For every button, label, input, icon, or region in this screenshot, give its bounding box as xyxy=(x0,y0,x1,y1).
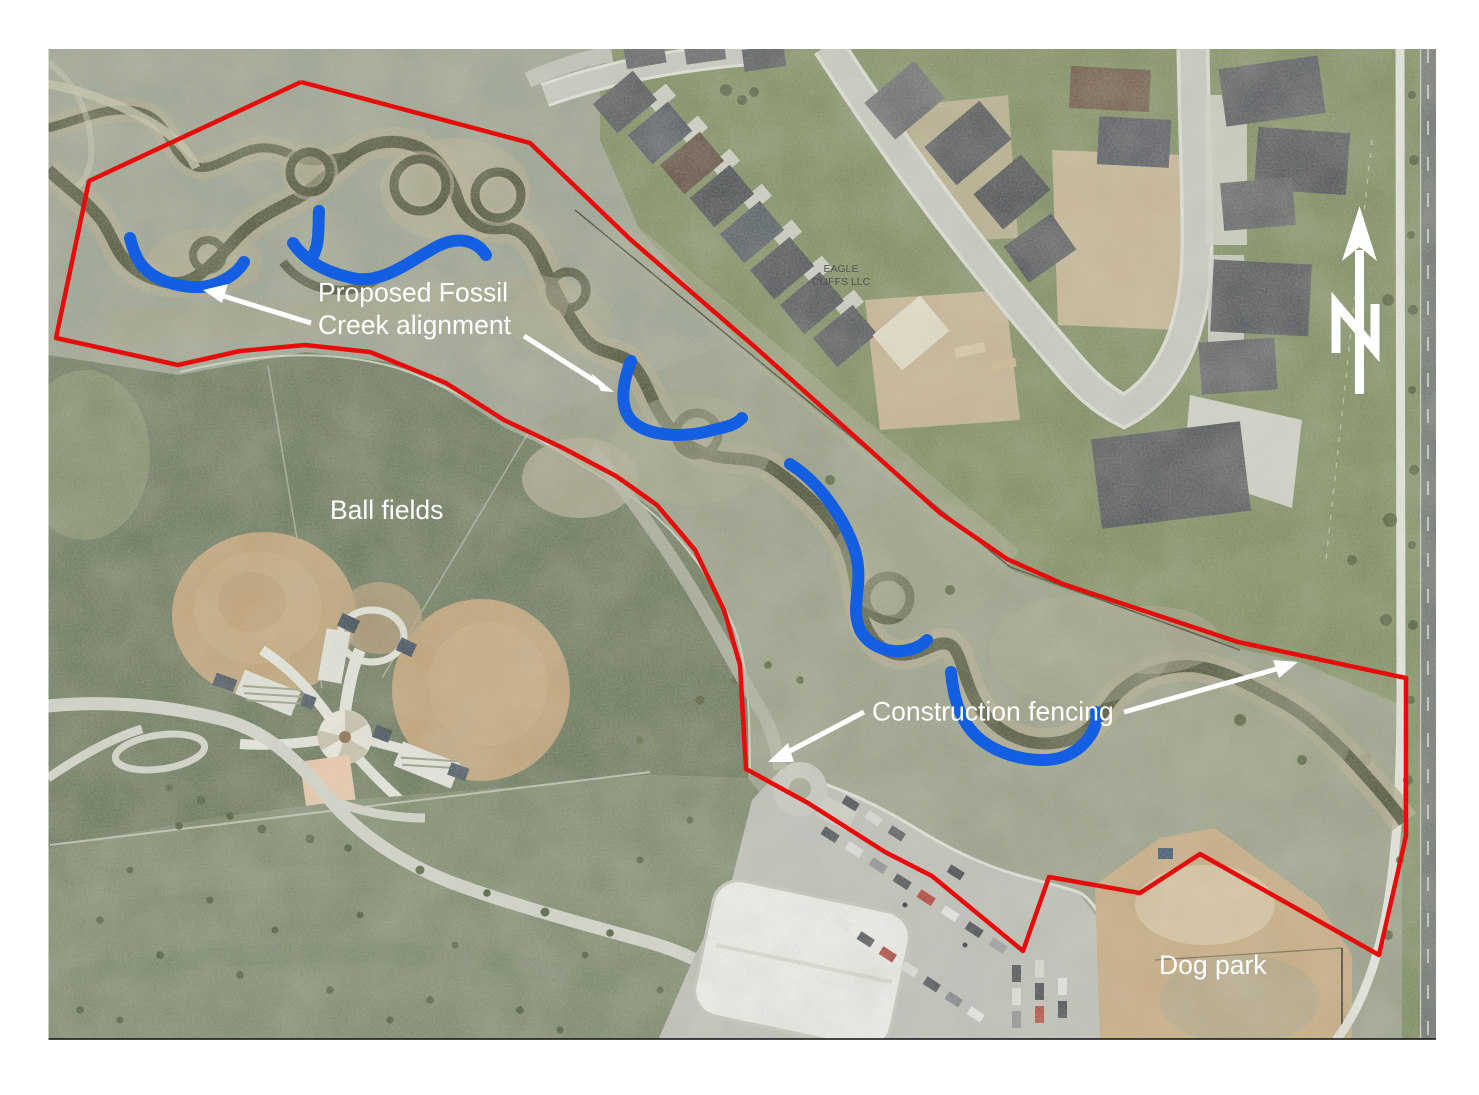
svg-text:Proposed Fossil: Proposed Fossil xyxy=(318,278,508,308)
svg-text:Construction fencing: Construction fencing xyxy=(872,697,1114,727)
svg-text:Dog park: Dog park xyxy=(1159,950,1267,980)
svg-text:Creek alignment: Creek alignment xyxy=(318,310,512,340)
svg-text:Ball fields: Ball fields xyxy=(330,495,443,525)
